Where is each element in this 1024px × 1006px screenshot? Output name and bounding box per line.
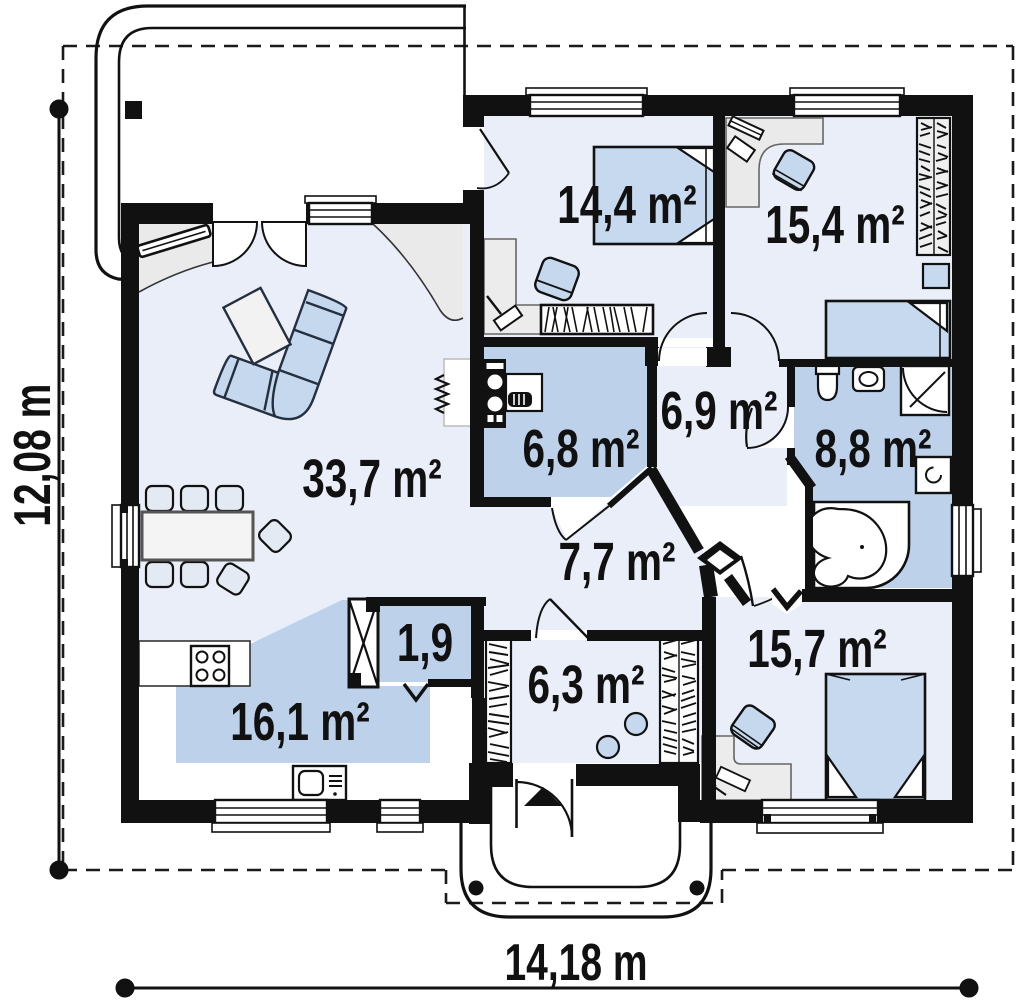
svg-text:15,7 m²: 15,7 m² [747,619,887,679]
svg-text:33,7 m²: 33,7 m² [302,449,442,509]
svg-text:6,3 m²: 6,3 m² [527,655,644,715]
svg-text:8,8 m²: 8,8 m² [814,419,931,479]
svg-text:14,18 m: 14,18 m [504,932,647,991]
svg-text:1,9: 1,9 [397,613,453,673]
svg-text:7,7 m²: 7,7 m² [558,532,675,592]
svg-text:16,1 m²: 16,1 m² [230,692,370,752]
svg-text:15,4 m²: 15,4 m² [765,195,905,255]
svg-text:6,9 m²: 6,9 m² [660,381,777,441]
svg-text:12,08 m: 12,08 m [2,384,61,527]
svg-text:14,4 m²: 14,4 m² [557,175,697,235]
svg-text:6,8 m²: 6,8 m² [522,419,639,479]
